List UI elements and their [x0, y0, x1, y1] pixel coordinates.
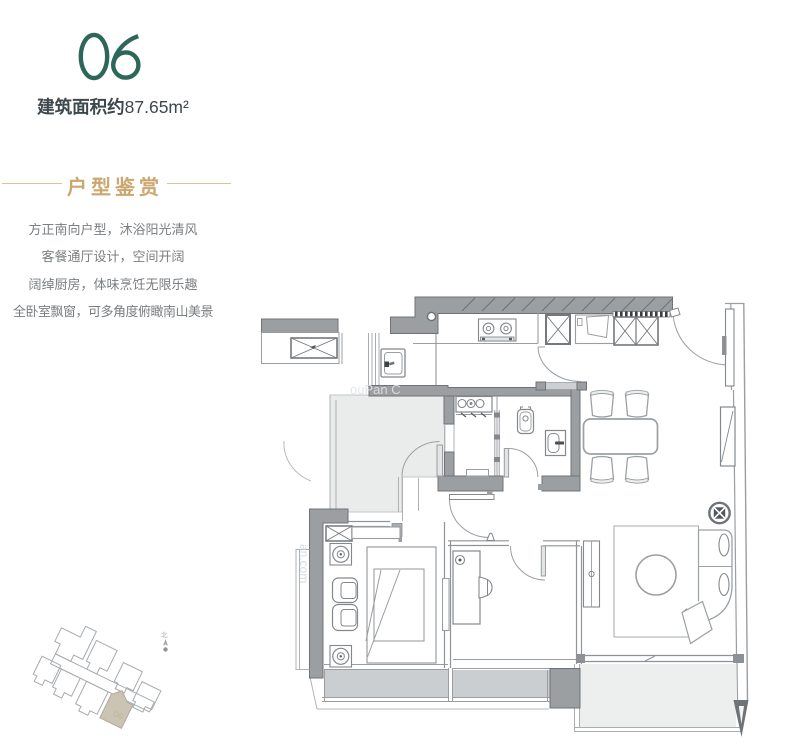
svg-text:an.com: an.com — [297, 544, 311, 583]
svg-text:北: 北 — [161, 631, 168, 639]
svg-text:ouPan C: ouPan C — [350, 382, 401, 397]
